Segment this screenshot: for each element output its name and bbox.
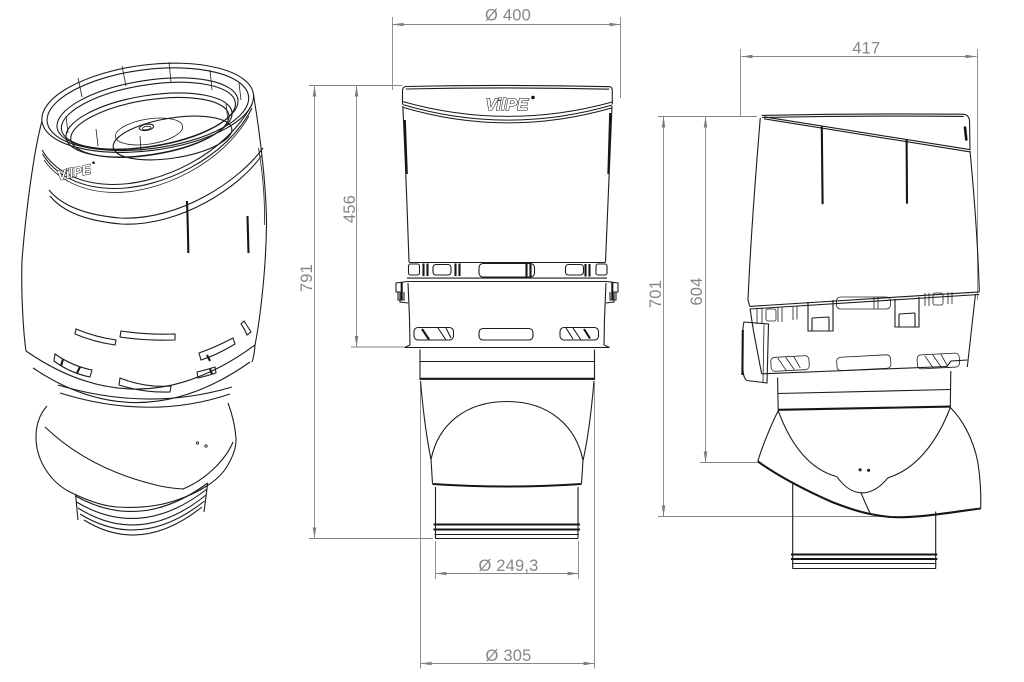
svg-text:604: 604 xyxy=(688,277,706,305)
svg-text:VilPE: VilPE xyxy=(486,95,529,114)
svg-text:Ø 400: Ø 400 xyxy=(485,7,531,25)
svg-text:701: 701 xyxy=(647,280,665,308)
svg-text:Ø 305: Ø 305 xyxy=(486,647,532,665)
svg-text:Ø 249,3: Ø 249,3 xyxy=(478,557,538,575)
svg-text:417: 417 xyxy=(852,40,880,58)
svg-text:791: 791 xyxy=(298,264,316,292)
svg-text:456: 456 xyxy=(341,195,359,223)
